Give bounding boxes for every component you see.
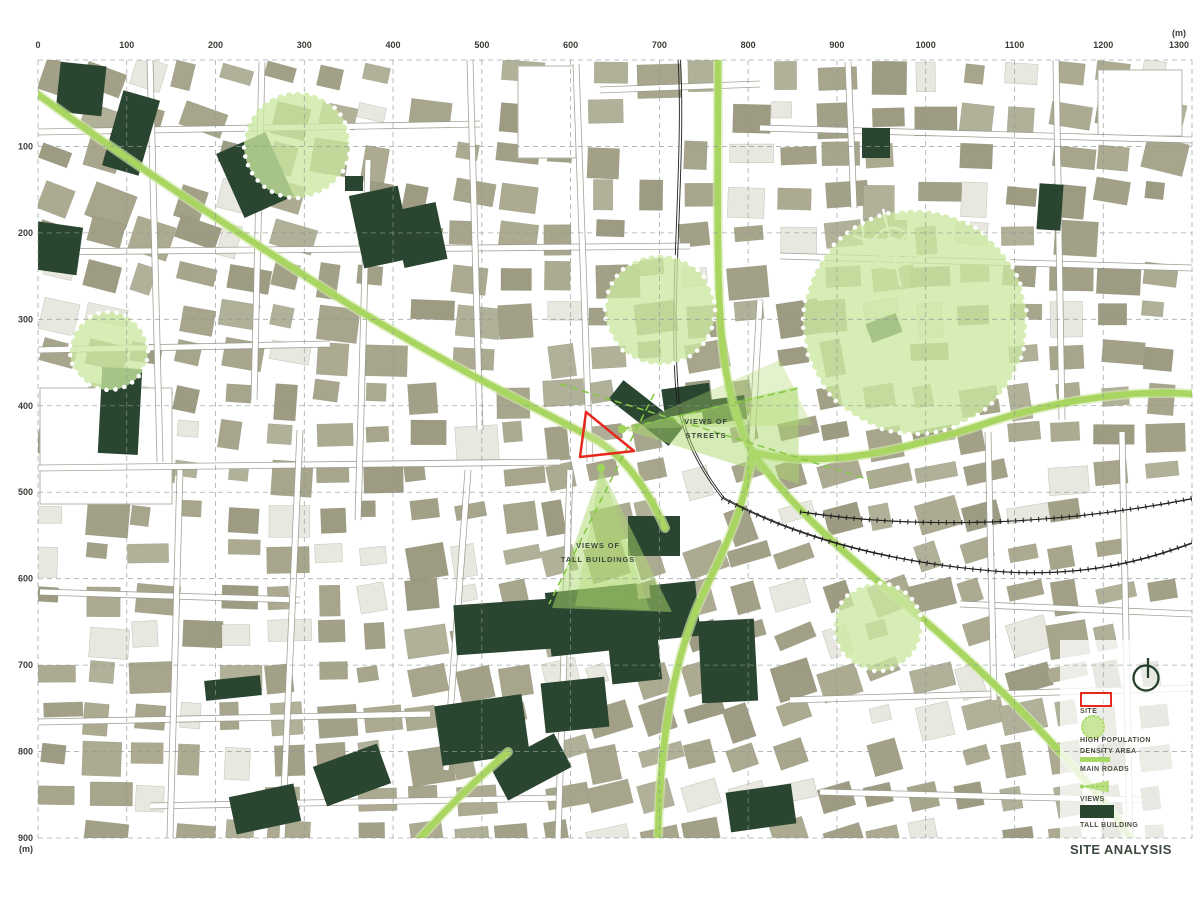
left-ruler-label: 300 xyxy=(18,314,33,324)
site-analysis-map: 0100200300400500600700800900100011001200… xyxy=(0,0,1200,900)
left-ruler-label: 600 xyxy=(18,574,33,584)
top-ruler-label: 800 xyxy=(741,40,756,50)
tall-building xyxy=(453,599,551,656)
legend-tall-building-swatch xyxy=(1080,805,1114,818)
north-symbol-icon xyxy=(1126,656,1168,700)
legend-density-label-line1: HIGH POPULATION xyxy=(1080,737,1151,744)
top-ruler-label: 1200 xyxy=(1093,40,1113,50)
page-title: SITE ANALYSIS xyxy=(1070,842,1172,857)
top-ruler-label: 200 xyxy=(208,40,223,50)
density-circle xyxy=(834,583,922,671)
top-ruler-label: 1100 xyxy=(1005,40,1025,50)
annotation-views-of-tall-buildings: VIEWS OF TALL BUILDINGS xyxy=(561,539,635,567)
view-origin-dot xyxy=(618,425,626,433)
density-circle xyxy=(244,92,350,198)
top-ruler-label: 1300 xyxy=(1169,40,1189,50)
site-analysis-canvas: 0100200300400500600700800900100011001200… xyxy=(0,0,1200,900)
left-ruler-label: 100 xyxy=(18,141,33,151)
annotation-views-of-streets: VIEWS OF STREETS xyxy=(684,415,728,443)
top-ruler-label: 900 xyxy=(829,40,844,50)
building-fabric xyxy=(33,55,1190,862)
top-ruler-unit: (m) xyxy=(1172,28,1186,38)
tall-building xyxy=(1036,183,1063,231)
left-ruler-label: 400 xyxy=(18,401,33,411)
left-ruler-label: 800 xyxy=(18,747,33,757)
left-ruler-label: 200 xyxy=(18,228,33,238)
left-ruler-label: 900 xyxy=(18,833,33,843)
annotation-line: TALL BUILDINGS xyxy=(561,553,635,567)
left-ruler-unit: (m) xyxy=(19,844,33,854)
tall-building xyxy=(204,675,262,701)
density-circle xyxy=(605,255,715,365)
top-ruler-label: 600 xyxy=(563,40,578,50)
top-ruler-label: 0 xyxy=(35,40,40,50)
tall-building xyxy=(395,210,425,236)
legend-views-label: VIEWS xyxy=(1080,796,1105,803)
legend-tall-building-label: TALL BUILDING xyxy=(1080,822,1138,829)
legend-main-roads-swatch xyxy=(1080,757,1110,762)
tall-building xyxy=(541,677,610,733)
legend-views-swatch xyxy=(1079,779,1111,794)
map-layers xyxy=(27,55,1196,862)
top-ruler-label: 400 xyxy=(386,40,401,50)
top-ruler-label: 300 xyxy=(297,40,312,50)
tall-building xyxy=(862,128,890,158)
top-ruler-label: 700 xyxy=(652,40,667,50)
tall-building xyxy=(345,176,363,191)
top-ruler-label: 100 xyxy=(119,40,134,50)
tall-building xyxy=(27,221,83,275)
view-origin-dot xyxy=(597,464,605,472)
left-ruler-label: 500 xyxy=(18,487,33,497)
legend-density-label-line2: DENSITY AREA xyxy=(1080,748,1137,755)
left-ruler-label: 700 xyxy=(18,660,33,670)
legend-main-roads-label: MAIN ROADS xyxy=(1080,766,1129,773)
annotation-line: VIEWS OF xyxy=(684,415,728,429)
tall-building xyxy=(698,619,758,704)
annotation-line: STREETS xyxy=(684,429,728,443)
top-ruler-label: 1000 xyxy=(916,40,936,50)
legend-site-label: SITE xyxy=(1080,708,1097,715)
legend-site-swatch xyxy=(1080,692,1112,707)
density-circle xyxy=(70,312,148,390)
legend-density-swatch xyxy=(1081,715,1105,739)
site-outline xyxy=(580,412,634,457)
top-ruler-label: 500 xyxy=(474,40,489,50)
annotation-line: VIEWS OF xyxy=(561,539,635,553)
